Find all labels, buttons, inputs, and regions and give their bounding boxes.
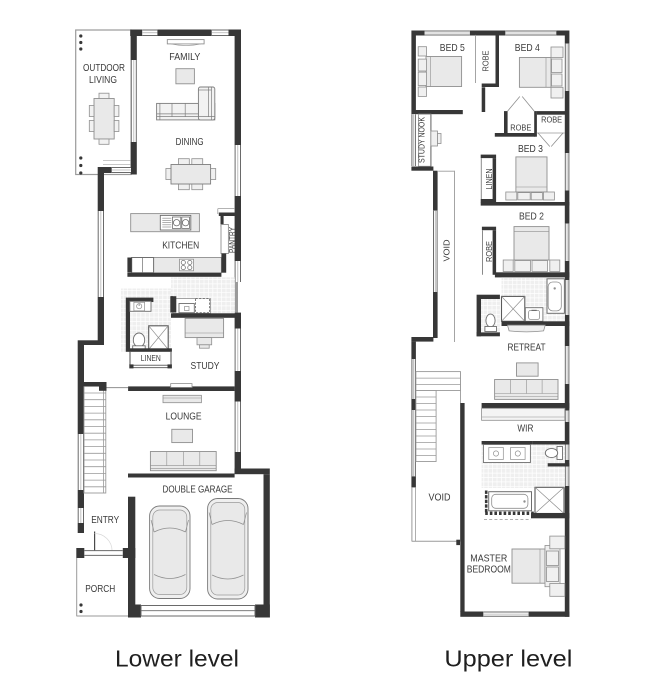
svg-text:BED 2: BED 2: [519, 211, 544, 223]
svg-text:RETREAT: RETREAT: [508, 342, 546, 354]
svg-text:STUDY: STUDY: [191, 360, 220, 372]
svg-text:ROBE: ROBE: [541, 116, 562, 125]
svg-text:ENTRY: ENTRY: [91, 514, 119, 526]
svg-text:LINEN: LINEN: [141, 354, 161, 363]
svg-text:BED 3: BED 3: [518, 143, 543, 155]
svg-text:Upper level: Upper level: [444, 646, 572, 672]
svg-text:BEDROOM: BEDROOM: [467, 564, 511, 576]
svg-text:FAMILY: FAMILY: [169, 51, 200, 63]
svg-text:VOID: VOID: [442, 239, 451, 261]
svg-text:Lower level: Lower level: [115, 646, 239, 672]
svg-text:STUDY NOOK: STUDY NOOK: [417, 116, 426, 163]
svg-text:BED 4: BED 4: [515, 42, 540, 54]
svg-text:ROBE: ROBE: [510, 124, 531, 133]
svg-text:VOID: VOID: [429, 492, 451, 504]
svg-text:LOUNGE: LOUNGE: [166, 411, 202, 423]
svg-text:PORCH: PORCH: [85, 583, 115, 595]
svg-text:ROBE: ROBE: [485, 241, 494, 262]
svg-text:KITCHEN: KITCHEN: [162, 240, 199, 252]
svg-text:LINEN: LINEN: [485, 168, 494, 189]
svg-text:WIR: WIR: [517, 423, 533, 435]
svg-text:LIVING: LIVING: [89, 74, 117, 86]
svg-text:PANTRY: PANTRY: [228, 226, 237, 253]
svg-text:DOUBLE GARAGE: DOUBLE GARAGE: [163, 484, 233, 496]
svg-text:OUTDOOR: OUTDOOR: [83, 62, 125, 74]
svg-text:DINING: DINING: [176, 136, 204, 148]
svg-text:ROBE: ROBE: [482, 51, 491, 72]
svg-text:BED 5: BED 5: [440, 42, 465, 54]
